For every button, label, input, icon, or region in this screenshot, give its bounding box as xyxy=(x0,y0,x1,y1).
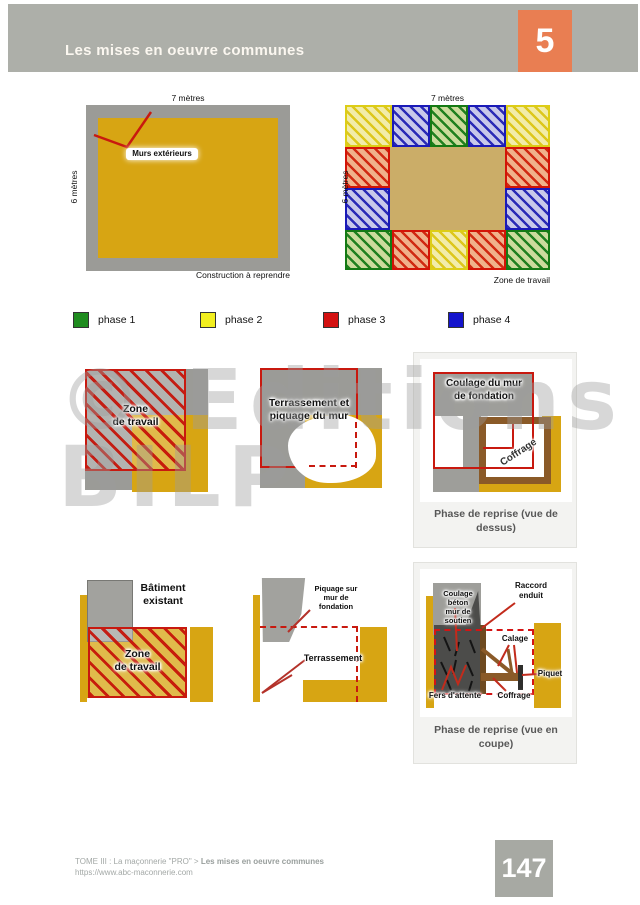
header-bar: Les mises en oeuvre communes 5 xyxy=(8,4,638,72)
soil-strip xyxy=(253,595,260,702)
excavation-dashed-line xyxy=(260,626,358,628)
zone-label: Zone de travail xyxy=(88,648,187,674)
zone-label: Zone de travail xyxy=(85,403,186,429)
page-title: Les mises en oeuvre communes xyxy=(65,42,304,59)
footer-breadcrumb: TOME III : La maçonnerie "PRO" > Les mis… xyxy=(75,857,324,866)
plan-caption: Construction à reprendre xyxy=(62,270,290,280)
building-label: Bâtiment existant xyxy=(128,582,198,608)
legend-label: phase 1 xyxy=(98,314,135,326)
soil-block xyxy=(360,627,387,702)
legend-item-phase3: phase 3 xyxy=(323,312,385,328)
terrassement-label: Terrassement et piquage du mur xyxy=(262,397,356,423)
piquage-label: Piquage sur mur de fondation xyxy=(305,584,367,611)
footer-url: https://www.abc-maconnerie.com xyxy=(75,868,193,877)
phase4-segment xyxy=(392,105,430,147)
phase1-swatch xyxy=(73,312,89,328)
breadcrumb-current: Les mises en oeuvre communes xyxy=(201,857,324,866)
height-dimension: 6 mètres xyxy=(69,159,79,215)
panel-caption: Phase de reprise (vue en coupe) xyxy=(414,723,578,751)
phase3-segment xyxy=(345,147,390,188)
width-dimension: 7 mètres xyxy=(86,93,290,103)
phase3-swatch xyxy=(323,312,339,328)
figure-piquage-terrassement: Piquage sur mur de fondation Terrassemen… xyxy=(250,576,390,704)
legend-label: phase 4 xyxy=(473,314,510,326)
figure-phased-plan: 7 mètres 6 mètres Zone de travail xyxy=(338,93,580,285)
soil-block xyxy=(303,680,360,702)
figure-existing-plan: 7 mètres 6 mètres Murs extérieurs Constr… xyxy=(62,93,298,283)
panel-reprise-dessus: Coulage du mur de fondation Coffrage Pha… xyxy=(413,352,577,548)
figure-terrassement: Terrassement et piquage du mur xyxy=(260,368,382,488)
phase4-swatch xyxy=(448,312,464,328)
phase3-segment xyxy=(468,230,506,270)
coulage-label: Coulage du mur de fondation xyxy=(436,378,532,403)
excavation-area xyxy=(288,415,376,483)
phase2-segment xyxy=(345,105,392,147)
phase3-segment xyxy=(392,230,430,270)
figure-zone-travail: Zone de travail xyxy=(85,369,208,492)
phase4-segment xyxy=(468,105,506,147)
building-interior xyxy=(98,118,278,258)
width-dimension: 7 mètres xyxy=(345,93,550,103)
height-dimension: 6 mètres xyxy=(340,159,350,215)
legend-item-phase4: phase 4 xyxy=(448,312,510,328)
excavation-dashed-line xyxy=(309,465,357,467)
phase1-segment xyxy=(345,230,392,270)
raccord-label: Raccord enduit xyxy=(502,581,560,600)
legend-label: phase 3 xyxy=(348,314,385,326)
legend-label: phase 2 xyxy=(225,314,262,326)
phase2-swatch xyxy=(200,312,216,328)
page-number: 147 xyxy=(495,840,553,897)
soil-block xyxy=(190,627,213,702)
piquet-label: Piquet xyxy=(528,669,572,679)
chapter-number: 5 xyxy=(518,10,572,72)
figure-batiment-existant: Bâtiment existant Zone de travail xyxy=(78,576,218,704)
phase1-segment xyxy=(506,230,550,270)
calage-label: Calage xyxy=(492,634,538,644)
breadcrumb-prefix: TOME III : La maçonnerie "PRO" > xyxy=(75,857,201,866)
plan-caption: Zone de travail xyxy=(345,275,550,285)
excavation-dashed-line xyxy=(355,422,357,468)
phase1-segment xyxy=(430,105,468,147)
coulage-beton-label: Coulage béton mur de soutien xyxy=(436,589,480,625)
phase2-segment xyxy=(430,230,468,270)
panel-caption: Phase de reprise (vue de dessus) xyxy=(414,507,578,535)
coffrage-label: Coffrage xyxy=(488,691,540,701)
phase2-segment xyxy=(506,105,550,147)
existing-wall xyxy=(433,469,481,492)
phase4-segment xyxy=(345,188,390,230)
phase3-segment xyxy=(505,147,550,188)
legend-item-phase2: phase 2 xyxy=(200,312,262,328)
building-interior xyxy=(390,147,505,230)
interior-corner xyxy=(479,484,561,492)
existing-wall xyxy=(260,578,307,642)
fers-attente-label: Fers d'attente xyxy=(424,691,486,701)
legend-item-phase1: phase 1 xyxy=(73,312,135,328)
phase4-segment xyxy=(505,188,550,230)
terrassement-label: Terrassement xyxy=(298,653,368,664)
wall-label: Murs extérieurs xyxy=(126,148,198,160)
panel-reprise-coupe: Coulage béton mur de soutien Raccord end… xyxy=(413,562,577,764)
page: Les mises en oeuvre communes 5 7 mètres … xyxy=(0,0,640,905)
phased-plan-body xyxy=(345,105,550,270)
